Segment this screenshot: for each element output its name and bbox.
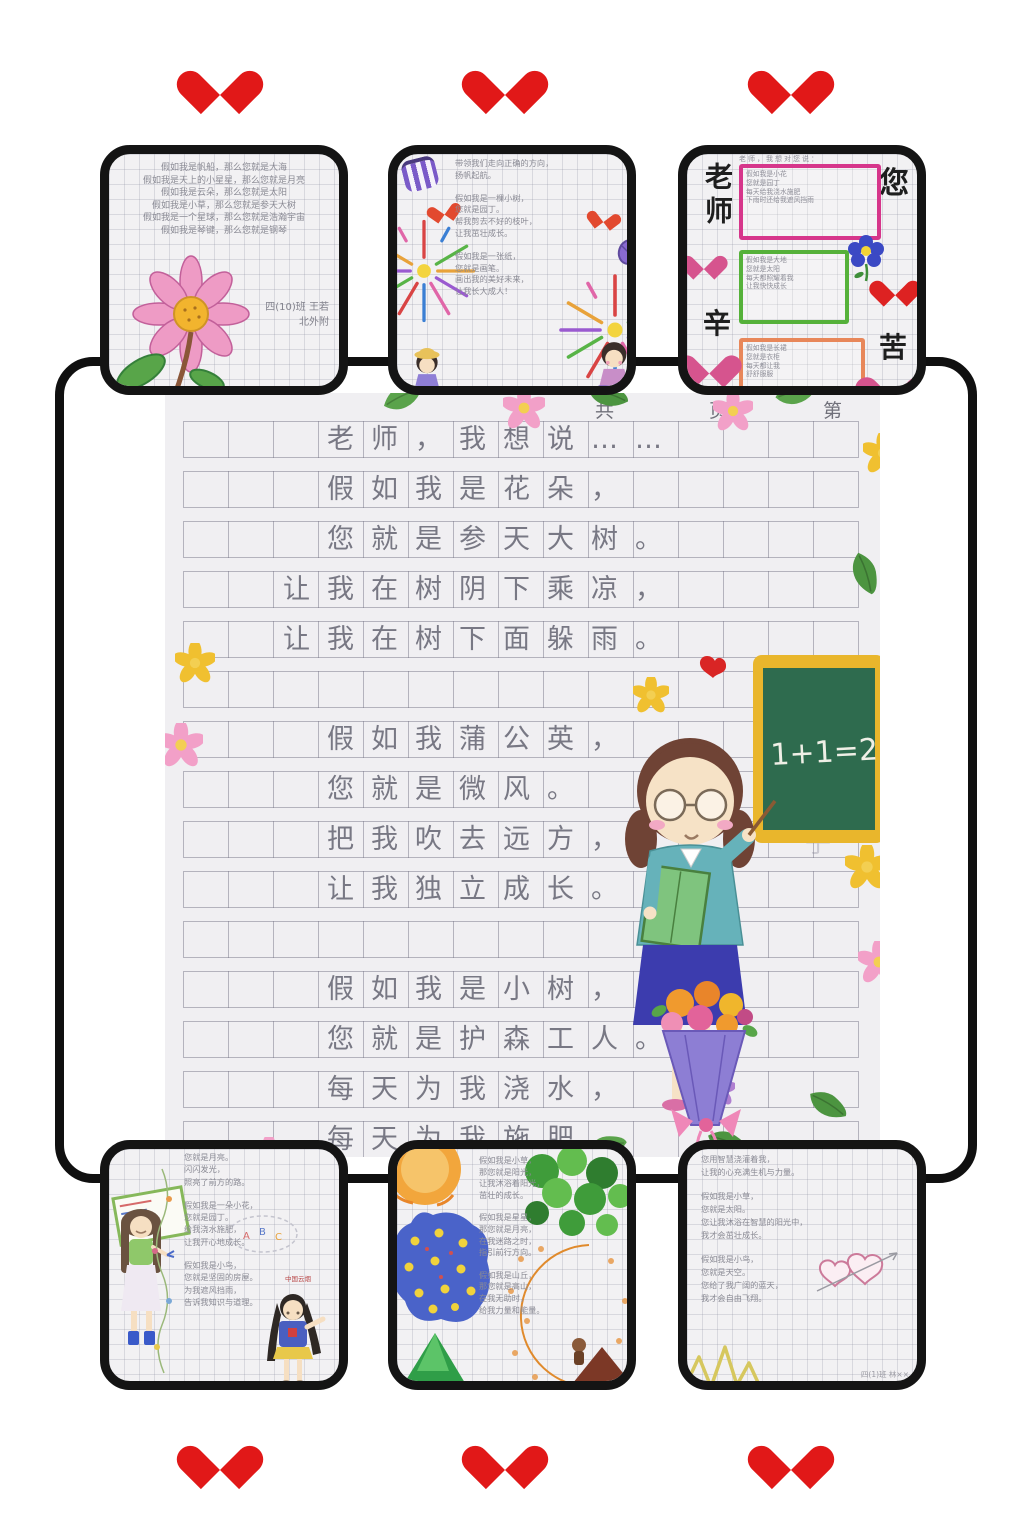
poem-line: 每天为我浇水， (327, 1071, 635, 1108)
text-line (455, 182, 630, 193)
blackboard-text: 1+1=2 (770, 732, 879, 773)
small-heart-icon (879, 270, 911, 299)
text-line: 舒舒服服 (746, 370, 858, 379)
yellow-flower-icon (175, 643, 215, 683)
text-line: 在我无助时， (479, 1293, 629, 1305)
yellow-squiggle-doodle (679, 1339, 779, 1390)
girl-figure (405, 348, 449, 395)
text-line: 假如我是帆船，那么您就是大海 (113, 162, 335, 175)
text-line: 那您就是高山， (479, 1281, 629, 1293)
text-line: 那您就是月亮， (479, 1224, 629, 1236)
text-line: 让我的心充满生机与力量。 (701, 1166, 906, 1179)
text-line: 假如我是小草，那么您就是参天大树 (113, 200, 335, 213)
text-line (479, 1201, 629, 1212)
text-line: 闪闪发光， (184, 1163, 342, 1175)
text-line: 您就是园丁 (746, 179, 874, 188)
text-line: 让我茁壮成长。 (455, 228, 630, 240)
sakura-flower-icon (713, 393, 753, 431)
small-heart-icon (689, 342, 730, 378)
thumbnail-card-top-middle: 带领我们走向正确的方向，扬帆起航。假如我是一棵小树，您就是园丁。帮我剪去不好的枝… (388, 145, 636, 395)
text-line: 假如我是云朵，那么您就是太阳 (113, 187, 335, 200)
text-line: 指引前行方向。 (479, 1247, 629, 1259)
heart-icon (764, 1428, 818, 1476)
girl-figure (255, 1289, 333, 1390)
text-line: 那您就是阳光， (479, 1167, 629, 1179)
text-line: 假如我是天上的小星星，那么您就是月亮 (113, 175, 335, 188)
heart-icon (193, 53, 247, 101)
lantern-icon (400, 154, 441, 193)
hearts-arrow-doodle (813, 1245, 901, 1301)
card-text-block: 假如我是帆船，那么您就是大海假如我是天上的小星星，那么您就是月亮假如我是云朵，那… (113, 162, 335, 237)
big-char-ku: 苦 (879, 326, 907, 366)
text-line (184, 1248, 342, 1259)
vine-doodle (149, 1169, 175, 1377)
text-line: 给我浇水施肥， (184, 1223, 342, 1235)
text-line: 扬帆起航。 (455, 170, 630, 182)
text-line: 让我长大成人！ (455, 286, 630, 298)
text-line: 假如我是小草， (479, 1155, 629, 1167)
text-line: 您就是园丁。 (455, 204, 630, 216)
heart-icon (478, 1428, 532, 1476)
poem-line: 让我在树阴下乘凉， (283, 571, 679, 608)
orange-box: 假如我是长裙您就是衣柜每天都让我舒舒服服 (739, 338, 865, 395)
text-line: 您就是园丁。 (184, 1211, 342, 1223)
yellow-flower-icon (863, 433, 880, 473)
text-line (701, 1179, 906, 1190)
text-line: 您就是坚固的房屋。 (184, 1271, 342, 1283)
text-line: 画出我的美好未来， (455, 274, 630, 286)
text-line: 您就是太阳。 (701, 1203, 906, 1216)
card-text-block: 带领我们走向正确的方向，扬帆起航。假如我是一棵小树，您就是园丁。帮我剪去不好的枝… (455, 158, 630, 298)
text-line: 您就是衣柜 (746, 353, 858, 362)
text-line: 假如我是星星， (479, 1212, 629, 1224)
signature-text: 四(1)班 林×× (861, 1369, 909, 1380)
poem-line: 假如我蒲公英， (327, 721, 635, 758)
green-box: 假如我是大地您就是太阳每天都照耀着我让我快快成长 (739, 250, 849, 324)
text-line: 假如我是小花 (746, 170, 874, 179)
small-heart-icon (431, 196, 456, 219)
text-line: 带领我们走向正确的方向， (455, 158, 630, 170)
leaf-icon (377, 393, 429, 418)
small-heart-icon (689, 246, 719, 272)
text-line: 帮我剪去不好的枝叶， (455, 216, 630, 228)
text-line: 假如我是一朵小花， (184, 1199, 342, 1211)
text-line: 假如我是琴键，那么您就是钢琴 (113, 225, 335, 238)
poem-line: 让我独立成长。 (327, 871, 635, 908)
big-char-xin: 辛 (703, 302, 731, 342)
text-line: 让我沐浴着阳光， (479, 1178, 629, 1190)
heart-icon (764, 53, 818, 101)
green-mountain-illustration (388, 1325, 482, 1390)
thumbnail-card-top-left: 假如我是帆船，那么您就是大海假如我是天上的小星星，那么您就是月亮假如我是云朵，那… (100, 145, 348, 395)
text-line (455, 240, 630, 251)
text-line: 您就是月亮。 (184, 1151, 342, 1163)
text-line: 您就是画笔。 (455, 263, 630, 275)
text-line: 假如我是一个星球，那么您就是浩瀚宇宙 (113, 212, 335, 225)
thumbnail-card-bottom-middle: 假如我是小草，那您就是阳光，让我沐浴着阳光，茁壮的成长。假如我是星星，那您就是月… (388, 1140, 636, 1390)
text-line (184, 1188, 342, 1199)
text-line: 让我快快成长 (746, 282, 842, 291)
big-char-laoshi: 老师 (697, 162, 737, 230)
text-line: 在我迷路之时， (479, 1236, 629, 1248)
sakura-flower-icon (165, 723, 203, 767)
text-line: 假如我是一张纸， (455, 251, 630, 263)
text-line: 假如我是大地 (746, 256, 842, 265)
text-line: 下雨时还给我遮风挡雨 (746, 196, 874, 205)
text-line: 让我开心地成长。 (184, 1236, 342, 1248)
card-text-block: 假如我是小草，那您就是阳光，让我沐浴着阳光，茁壮的成长。假如我是星星，那您就是月… (479, 1155, 629, 1316)
thumbnail-card-bottom-left: A B C 中国云烟 您就是月亮。闪闪发光，照亮了前方的路。假如我是一朵小花，您… (100, 1140, 348, 1390)
thumbnail-card-top-right: 老师，我想对您说： 老师 您 辛 苦 假如我是小花您就是园丁每天给我浇水施肥下雨… (678, 145, 926, 395)
text-line: 给我力量和能量。 (479, 1305, 629, 1317)
text-line: 您让我沐浴在智慧的阳光中， (701, 1216, 906, 1229)
heart-icon (478, 53, 532, 101)
text-line: 北外附 (265, 315, 329, 330)
text-line: 我才会茁壮成长。 (701, 1229, 906, 1242)
poem-line: 假如我是小树， (327, 971, 635, 1008)
small-heart-icon (869, 362, 915, 395)
card-heading: 老师，我想对您说： (739, 154, 820, 164)
card-text-block: 您就是月亮。闪闪发光，照亮了前方的路。假如我是一朵小花，您就是园丁。给我浇水施肥… (184, 1151, 342, 1308)
small-heart-icon (700, 656, 726, 678)
collage-canvas: 共 页 第 页 老师，我想说…… 假如我是花朵， 您就是参天大树。 让我在树阴下… (0, 0, 1024, 1536)
pink-daisy-illustration (111, 254, 271, 394)
text-line: 您用智慧浇灌着我， (701, 1153, 906, 1166)
text-line: 假如我是山丘， (479, 1270, 629, 1282)
poem-line: 把我吹去远方， (327, 821, 635, 858)
text-line: 假如我是小鸟， (184, 1259, 342, 1271)
text-line: 假如我是小草， (701, 1190, 906, 1203)
poem-line: 您就是参天大树。 (327, 521, 679, 558)
text-line: 茁壮的成长。 (479, 1190, 629, 1202)
text-line: 您就是太阳 (746, 265, 842, 274)
glasses-icon (655, 790, 685, 820)
bouquet-illustration (645, 973, 765, 1157)
pink-box: 假如我是小花您就是园丁每天给我浇水施肥下雨时还给我遮风挡雨 (739, 164, 881, 240)
sakura-flower-icon (503, 393, 545, 429)
text-line: 四(10)班 王若 (265, 300, 329, 315)
thumbnail-card-bottom-right: 您用智慧浇灌着我，让我的心充满生机与力量。假如我是小草，您就是太阳。您让我沐浴在… (678, 1140, 926, 1390)
poem-line: 假如我是花朵， (327, 471, 635, 508)
text-line: 照亮了前方的路。 (184, 1176, 342, 1188)
text-line (479, 1259, 629, 1270)
main-composition-photo: 共 页 第 页 老师，我想说…… 假如我是花朵， 您就是参天大树。 让我在树阴下… (165, 393, 880, 1157)
poem-line: 您就是微风。 (327, 771, 591, 808)
heart-icon (193, 1428, 247, 1476)
text-line: 假如我是一棵小树， (455, 193, 630, 205)
brown-mountain-illustration (547, 1341, 636, 1390)
signature-block: 四(10)班 王若北外附 (265, 300, 329, 330)
big-char-nin: 您 (879, 158, 909, 202)
text-line: 假如我是长裙 (746, 344, 858, 353)
